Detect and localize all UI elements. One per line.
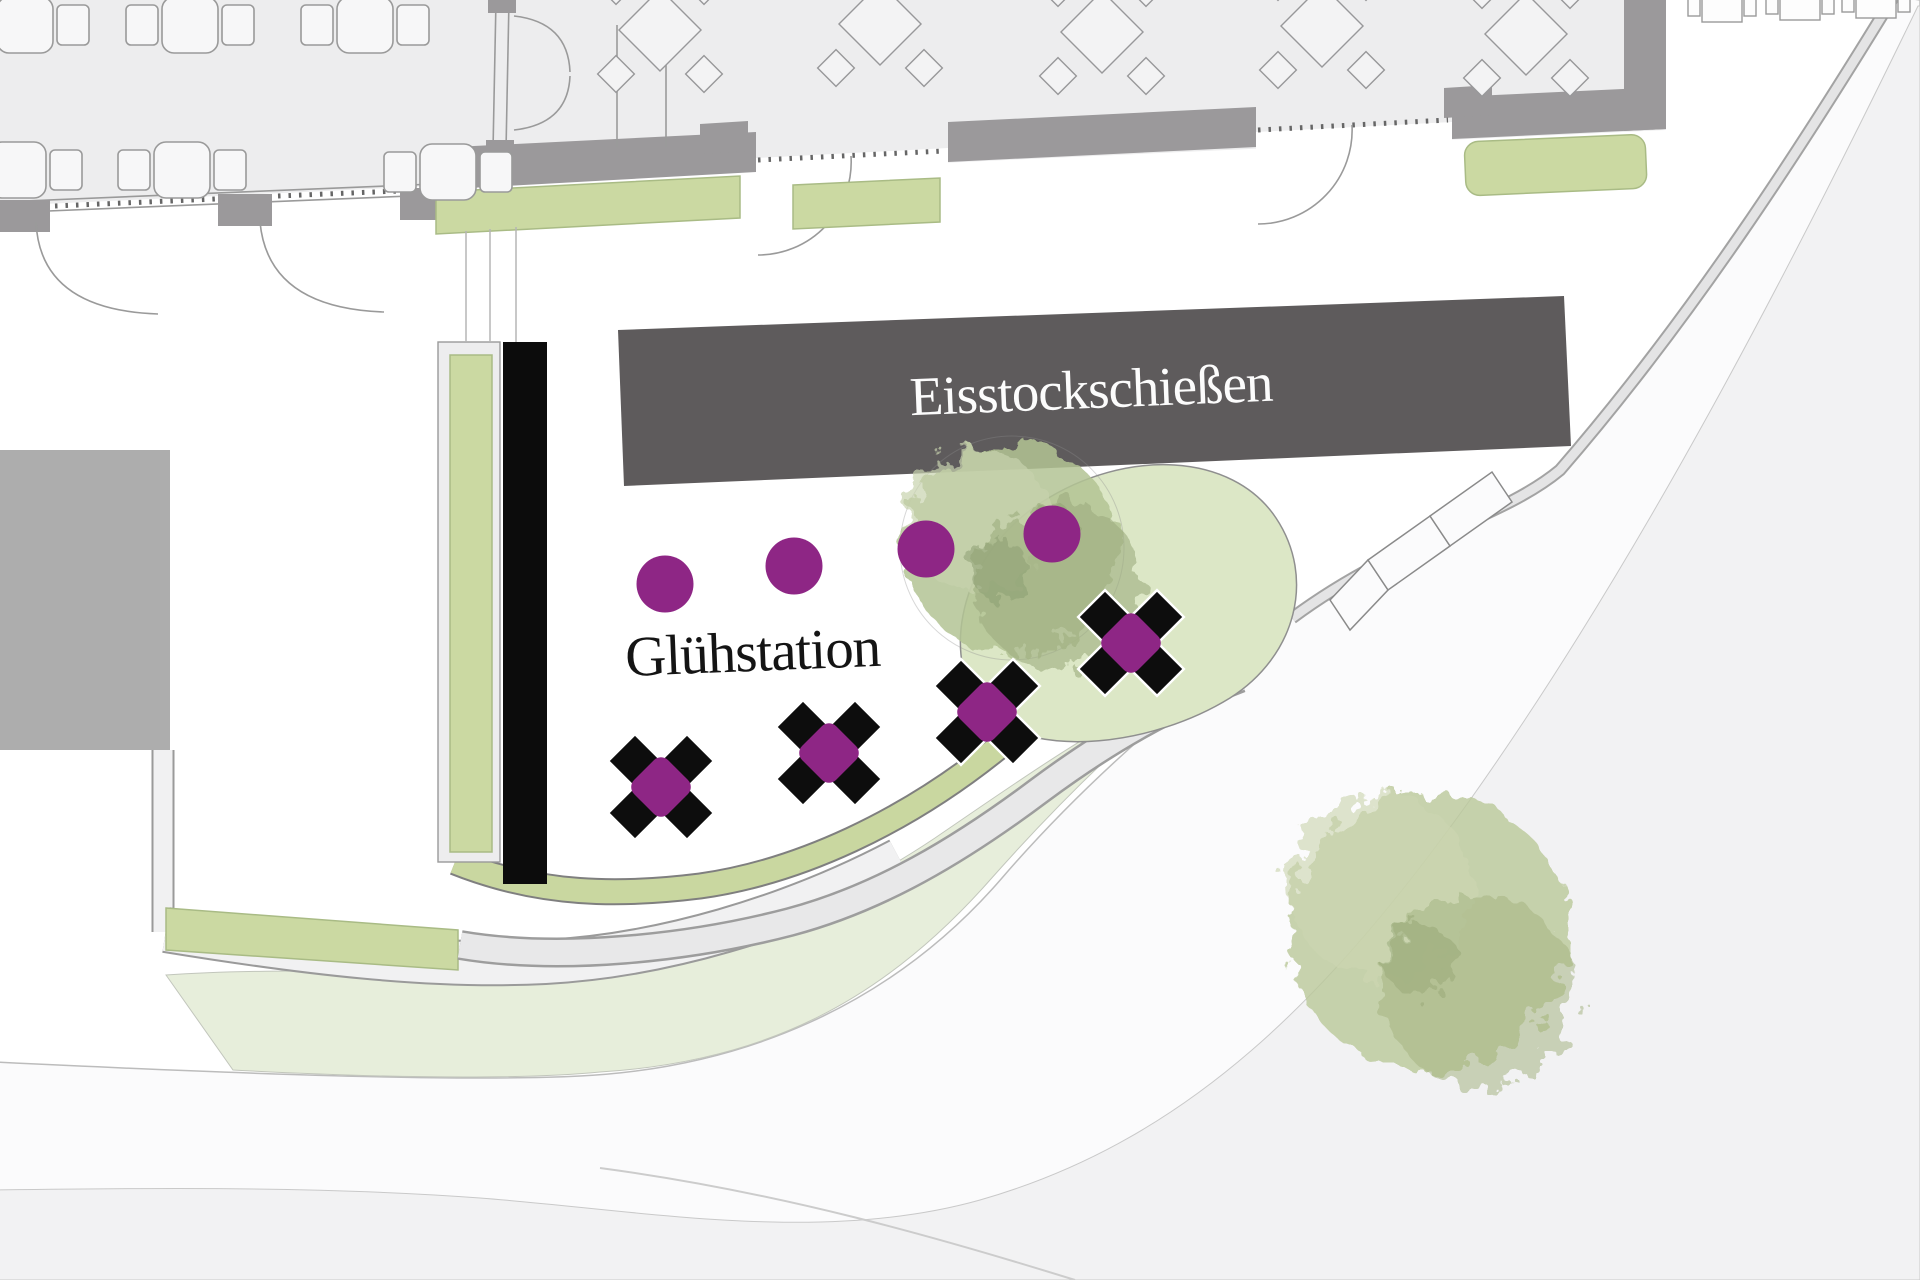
planting-strip-vertical xyxy=(450,355,492,852)
mini-table xyxy=(1688,0,1756,22)
wall-pier xyxy=(488,0,516,13)
indoor-table xyxy=(301,0,429,53)
building-wall-right xyxy=(1624,0,1666,131)
facade-planter xyxy=(1464,134,1647,196)
standing-table xyxy=(898,521,955,578)
station-label: Glühstation xyxy=(624,616,882,689)
indoor-table xyxy=(0,0,89,53)
planter-strip xyxy=(166,908,458,970)
site-plan-canvas: Eisstockschießen Glühstation xyxy=(0,0,1920,1280)
outdoor-mini-tables xyxy=(1688,0,1910,22)
mini-table xyxy=(1766,0,1834,20)
standing-table xyxy=(1024,506,1081,563)
wall-pier xyxy=(0,200,50,232)
indoor-table xyxy=(126,0,254,53)
standing-table xyxy=(637,556,694,613)
facade-planter xyxy=(793,178,940,229)
door-arc xyxy=(36,222,158,314)
building xyxy=(0,0,1910,342)
black-wall xyxy=(503,342,547,884)
cross-bench-table xyxy=(776,700,882,806)
cross-bench-table xyxy=(608,734,714,840)
site-plan-page: Eisstockschießen Glühstation xyxy=(0,0,1920,1280)
courtyard-lines xyxy=(466,227,516,342)
standing-table xyxy=(766,538,823,595)
wall-pier xyxy=(700,121,748,154)
gray-annex-block xyxy=(0,450,170,750)
door-arc xyxy=(260,222,384,312)
wall-pier xyxy=(218,194,272,226)
indoor-table xyxy=(0,142,82,198)
indoor-table xyxy=(118,142,246,198)
indoor-table xyxy=(384,144,512,200)
